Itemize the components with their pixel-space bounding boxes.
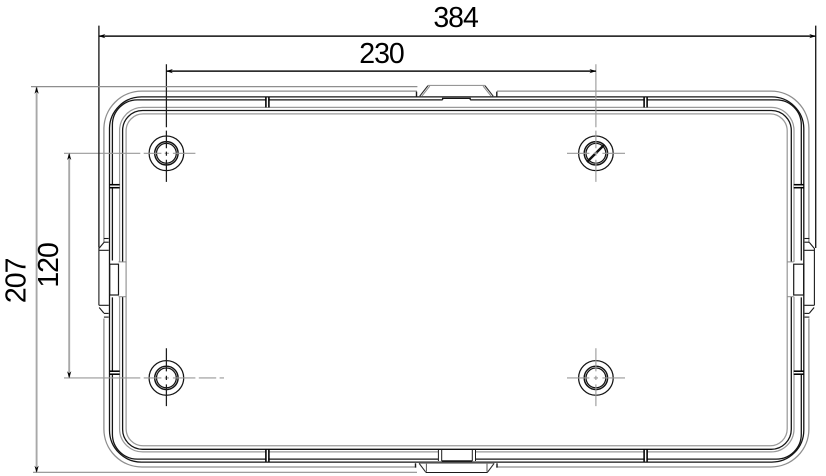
svg-text:384: 384 bbox=[433, 2, 479, 34]
svg-text:230: 230 bbox=[359, 38, 404, 70]
svg-text:120: 120 bbox=[33, 243, 65, 288]
svg-text:207: 207 bbox=[1, 258, 33, 303]
